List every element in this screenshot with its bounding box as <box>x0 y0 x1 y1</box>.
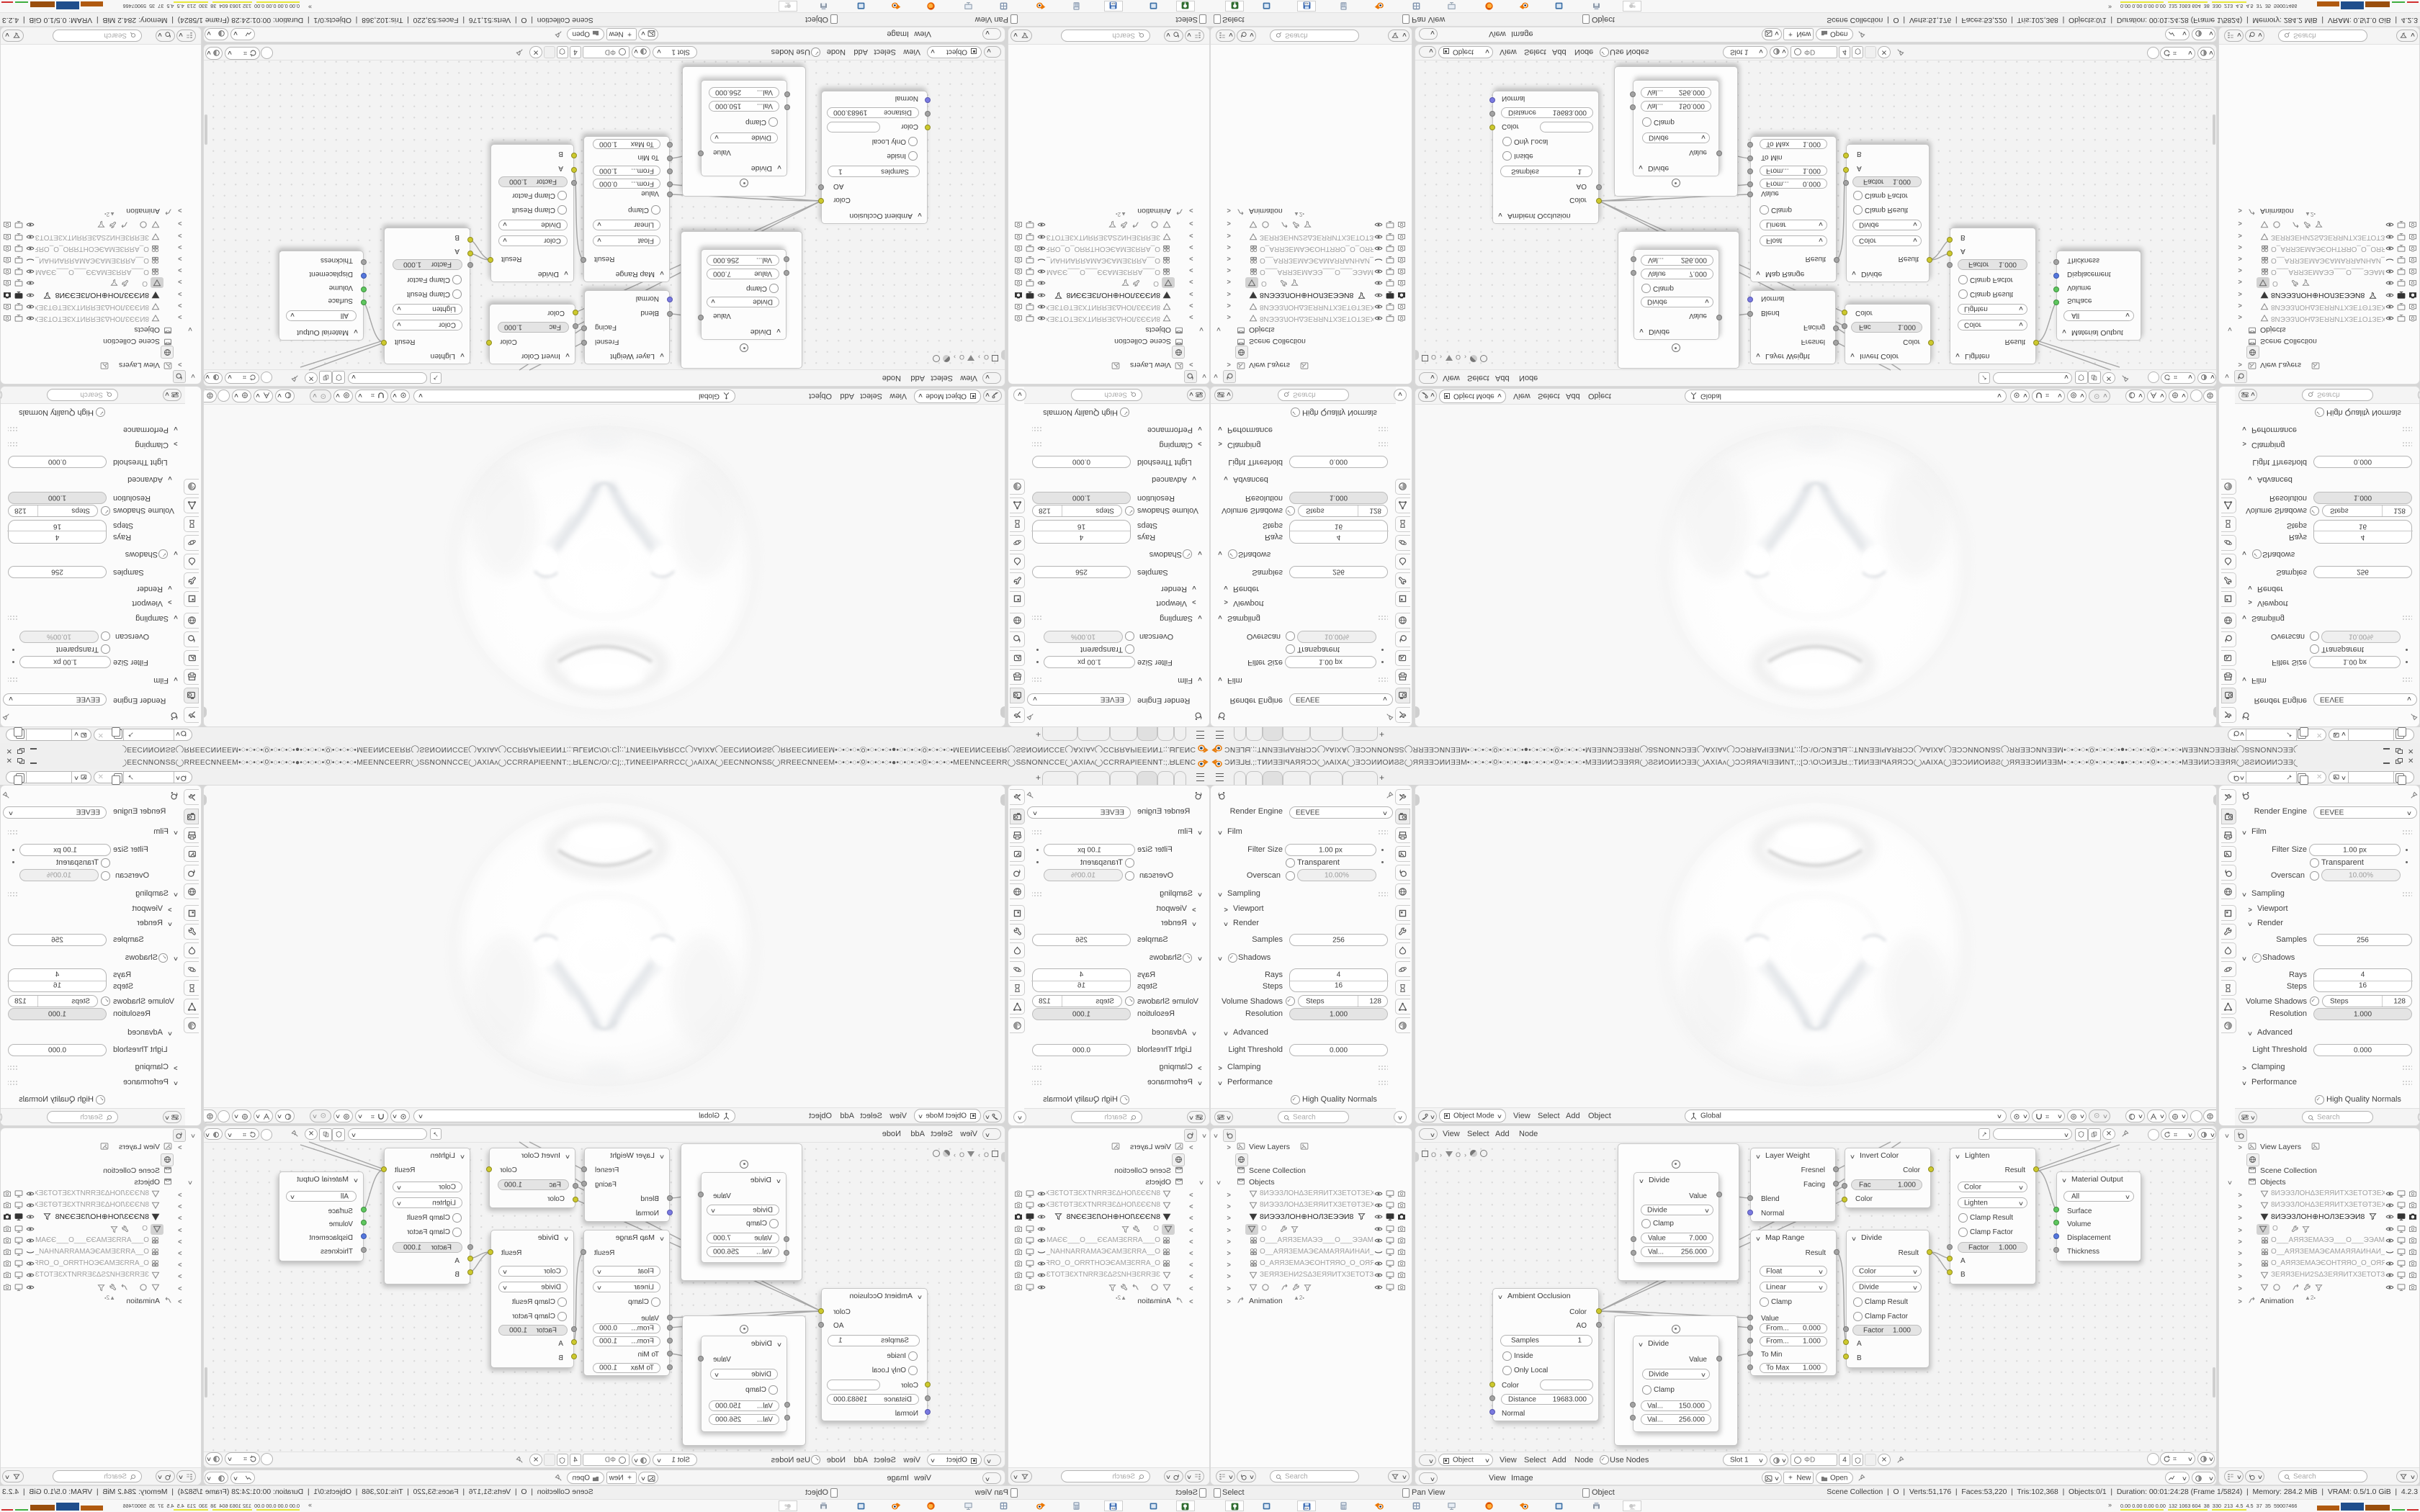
svg-text:64: 64 <box>1111 1507 1115 1511</box>
svg-text:64: 64 <box>1111 1 1115 5</box>
svg-text:64: 64 <box>1305 1 1309 5</box>
svg-text:64: 64 <box>1305 1507 1309 1511</box>
